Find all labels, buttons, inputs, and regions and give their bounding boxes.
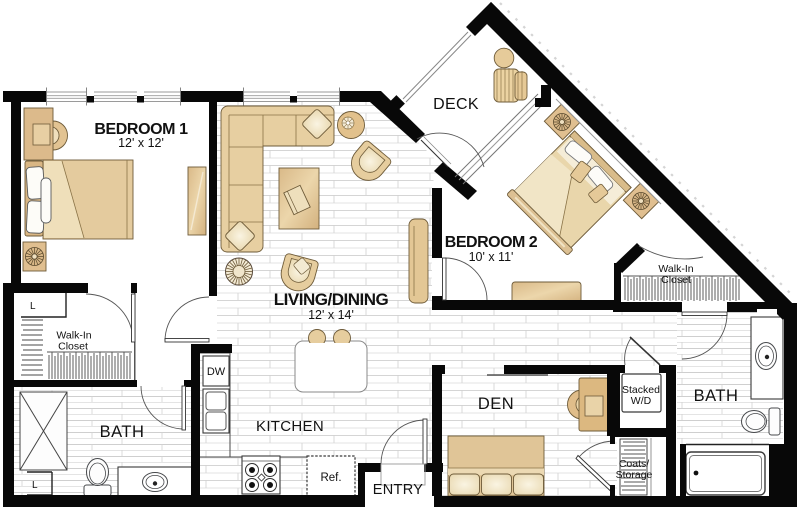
- svg-text:Storage: Storage: [616, 469, 653, 481]
- svg-text:ENTRY: ENTRY: [373, 482, 423, 498]
- svg-text:LIVING/DINING: LIVING/DINING: [274, 290, 389, 309]
- svg-text:BATH: BATH: [694, 387, 739, 405]
- svg-text:Closet: Closet: [58, 341, 88, 353]
- svg-text:12' x 12': 12' x 12': [118, 136, 164, 150]
- svg-text:DEN: DEN: [478, 395, 514, 413]
- svg-text:W/D: W/D: [631, 395, 652, 407]
- svg-text:BEDROOM 2: BEDROOM 2: [445, 234, 538, 251]
- svg-text:KITCHEN: KITCHEN: [256, 418, 324, 435]
- svg-text:Closet: Closet: [661, 274, 691, 286]
- svg-text:L: L: [32, 480, 38, 491]
- svg-text:12' x 14': 12' x 14': [308, 308, 354, 322]
- svg-text:L: L: [30, 301, 36, 312]
- svg-text:DW: DW: [207, 366, 226, 378]
- svg-text:Ref.: Ref.: [320, 472, 341, 484]
- svg-text:DECK: DECK: [433, 96, 479, 113]
- svg-text:10' x 11': 10' x 11': [469, 250, 514, 264]
- svg-text:BATH: BATH: [100, 423, 145, 441]
